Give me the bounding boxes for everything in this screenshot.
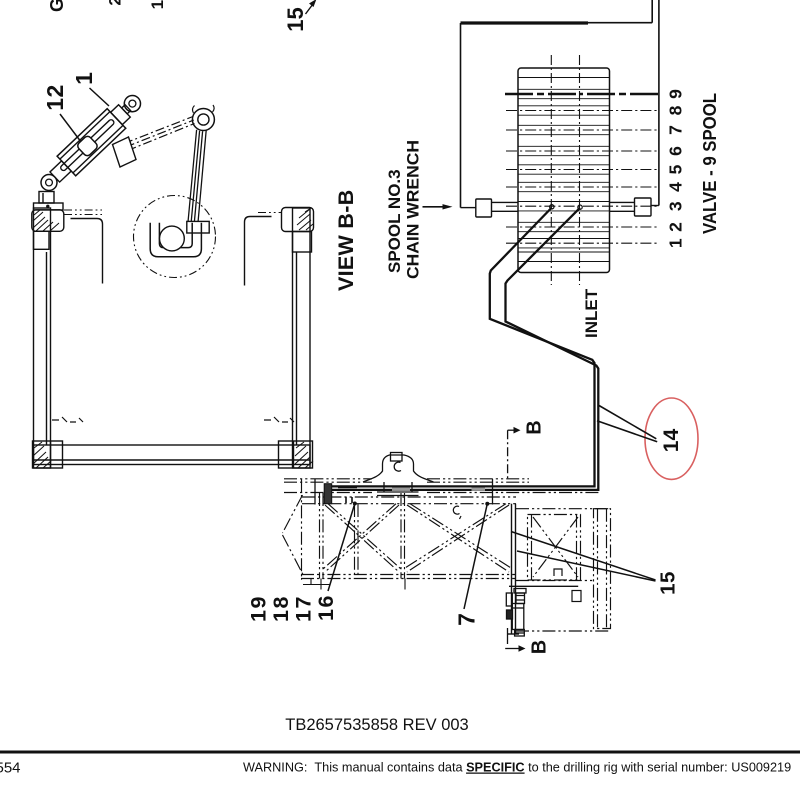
svg-text:6: 6 <box>666 146 686 156</box>
svg-text:15: 15 <box>283 7 308 31</box>
svg-text:2: 2 <box>105 0 124 6</box>
svg-text:16: 16 <box>314 594 338 621</box>
svg-text:18: 18 <box>269 595 293 622</box>
svg-text:17: 17 <box>291 595 315 622</box>
svg-text:VIEW B-B: VIEW B-B <box>334 189 358 291</box>
svg-text:VALVE - 9 SPOOL: VALVE - 9 SPOOL <box>699 93 720 234</box>
svg-text:B: B <box>529 640 551 654</box>
svg-text:1: 1 <box>666 238 686 248</box>
svg-text:G: G <box>47 0 67 12</box>
svg-text:3: 3 <box>666 201 686 211</box>
svg-text:19: 19 <box>246 595 270 622</box>
svg-text:5: 5 <box>666 164 686 174</box>
svg-text:4: 4 <box>666 182 686 192</box>
svg-text:15: 15 <box>657 571 680 595</box>
svg-text:WARNING: This manual contains: WARNING: This manual contains data SPECI… <box>243 761 791 775</box>
svg-text:CHAIN WRENCH: CHAIN WRENCH <box>404 140 423 279</box>
svg-text:2: 2 <box>666 222 686 232</box>
svg-text:8: 8 <box>666 105 686 115</box>
svg-text:SPOOL NO.3: SPOOL NO.3 <box>385 169 404 273</box>
svg-text:1: 1 <box>148 0 167 9</box>
svg-text:7: 7 <box>666 125 686 135</box>
svg-text:B: B <box>524 420 546 434</box>
svg-text:554: 554 <box>0 760 21 777</box>
svg-text:14: 14 <box>660 429 683 453</box>
svg-text:7: 7 <box>454 613 480 626</box>
svg-text:TB2657535858 REV 003: TB2657535858 REV 003 <box>285 716 468 734</box>
svg-text:INLET: INLET <box>582 288 601 338</box>
svg-text:9: 9 <box>666 89 686 99</box>
svg-text:12: 12 <box>42 84 68 111</box>
svg-text:1: 1 <box>71 72 97 85</box>
